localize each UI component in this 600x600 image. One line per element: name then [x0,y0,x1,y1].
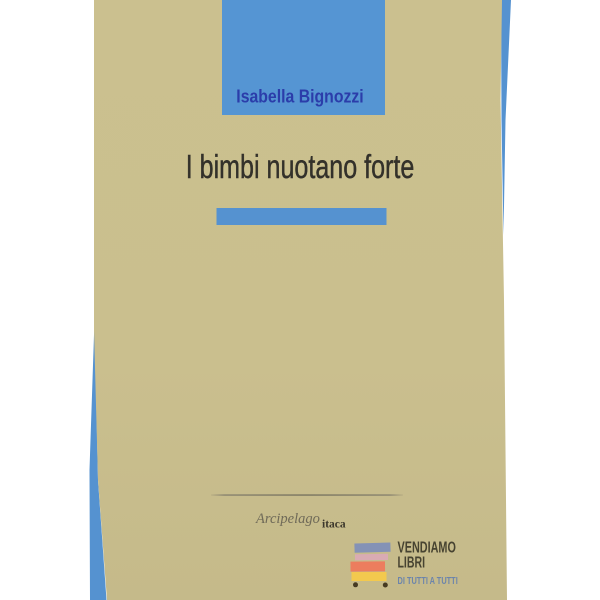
svg-text:itaca: itaca [322,519,346,531]
svg-text:Arcipelago: Arcipelago [255,511,320,527]
svg-text:DI TUTTI A TUTTI: DI TUTTI A TUTTI [398,575,458,587]
svg-text:Isabella Bignozzi: Isabella Bignozzi [236,85,363,106]
svg-text:I bimbi nuotano forte: I bimbi nuotano forte [186,149,415,186]
svg-text:LIBRI: LIBRI [398,553,426,571]
